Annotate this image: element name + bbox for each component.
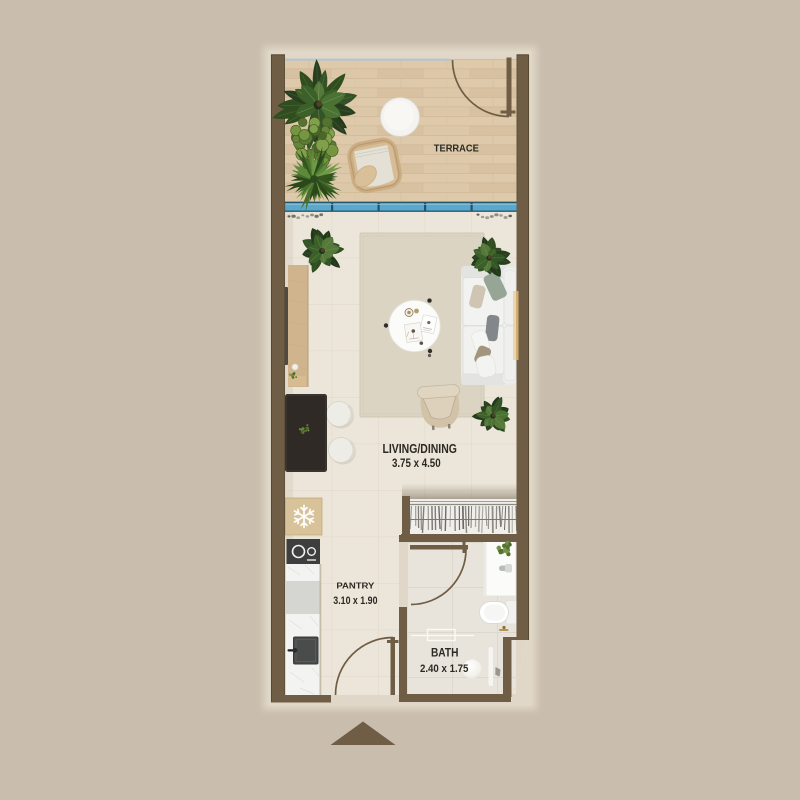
svg-text:PANTRY: PANTRY xyxy=(336,580,374,590)
svg-text:3.75 x 4.50: 3.75 x 4.50 xyxy=(392,456,441,470)
svg-text:LIVING/DINING: LIVING/DINING xyxy=(383,441,457,456)
svg-text:2.40 x 1.75: 2.40 x 1.75 xyxy=(420,663,469,675)
svg-text:BATH: BATH xyxy=(431,645,459,659)
svg-text:3.10 x 1.90: 3.10 x 1.90 xyxy=(333,595,377,607)
svg-text:TERRACE: TERRACE xyxy=(434,143,479,154)
